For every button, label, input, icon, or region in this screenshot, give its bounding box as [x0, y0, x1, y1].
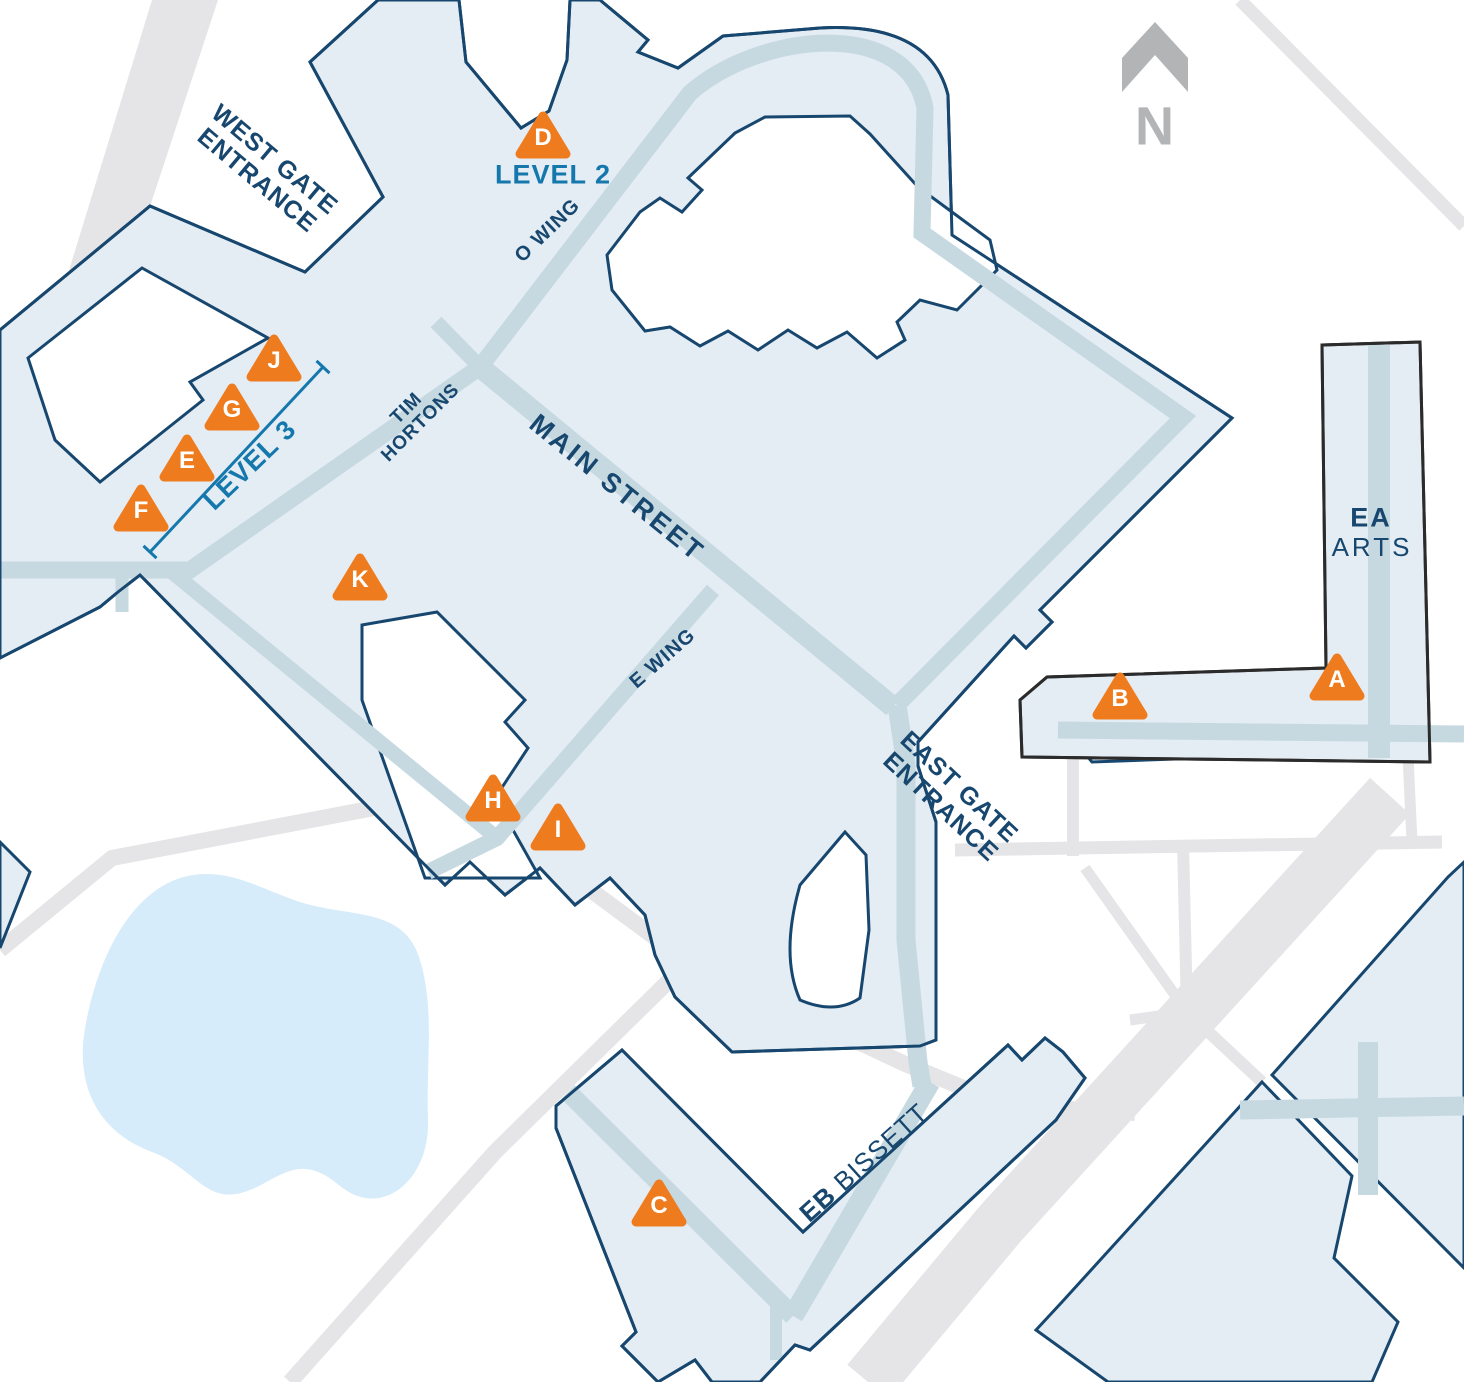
marker-letter: C	[631, 1192, 687, 1220]
campus-map: WEST GATE ENTRANCELEVEL 2O WINGTIM HORTO…	[0, 0, 1464, 1382]
marker-E[interactable]: E	[159, 432, 215, 482]
pond	[83, 874, 429, 1199]
marker-A[interactable]: A	[1309, 651, 1365, 701]
marker-C[interactable]: C	[631, 1177, 687, 1227]
label-ea: EA	[1350, 504, 1392, 533]
marker-letter: F	[113, 497, 169, 525]
marker-letter: J	[246, 347, 302, 375]
marker-I[interactable]: I	[530, 801, 586, 851]
label-level-2: LEVEL 2	[495, 161, 611, 190]
marker-F[interactable]: F	[113, 482, 169, 532]
road	[1240, 0, 1464, 226]
marker-letter: H	[465, 787, 521, 815]
map-canvas	[0, 0, 1464, 1382]
corridor	[1240, 1106, 1464, 1110]
marker-letter: K	[332, 566, 388, 594]
marker-letter: I	[530, 816, 586, 844]
road	[1085, 868, 1187, 1012]
marker-H[interactable]: H	[465, 772, 521, 822]
marker-letter: A	[1309, 666, 1365, 694]
marker-G[interactable]: G	[204, 381, 260, 431]
label-north-n: N	[1135, 98, 1175, 155]
marker-K[interactable]: K	[332, 551, 388, 601]
marker-letter: D	[515, 124, 571, 152]
road	[1408, 756, 1412, 842]
corridor-ea-wing	[1058, 730, 1464, 734]
marker-J[interactable]: J	[246, 332, 302, 382]
marker-letter: B	[1092, 685, 1148, 713]
marker-letter: G	[204, 396, 260, 424]
marker-letter: E	[159, 447, 215, 475]
label-arts: ARTS	[1332, 534, 1413, 562]
north-arrow-icon	[1122, 22, 1188, 92]
marker-B[interactable]: B	[1092, 670, 1148, 720]
marker-D[interactable]: D	[515, 109, 571, 159]
